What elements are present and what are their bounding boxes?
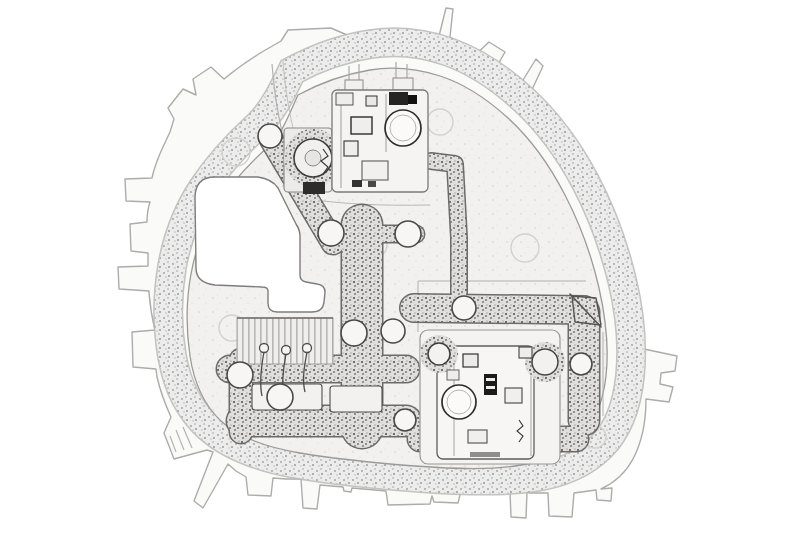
bulb-socket-right (420, 330, 562, 464)
contact-rivet (258, 124, 282, 148)
socket-port-circle (532, 349, 558, 375)
contact-rivet (570, 353, 592, 375)
trace-top-bar (414, 308, 584, 310)
contact-rivet (341, 320, 367, 346)
contact-rivet (318, 220, 344, 246)
contact-rivet (267, 384, 293, 410)
contact-rivet (227, 362, 253, 388)
bulb-holder-sketch (0, 0, 800, 533)
contact-rivet (381, 319, 405, 343)
contact-rivet (394, 409, 416, 431)
sketch-canvas (0, 0, 800, 533)
contact-rivet (452, 296, 476, 320)
socket-port-circle (428, 343, 450, 365)
contact-rivet (395, 221, 421, 247)
